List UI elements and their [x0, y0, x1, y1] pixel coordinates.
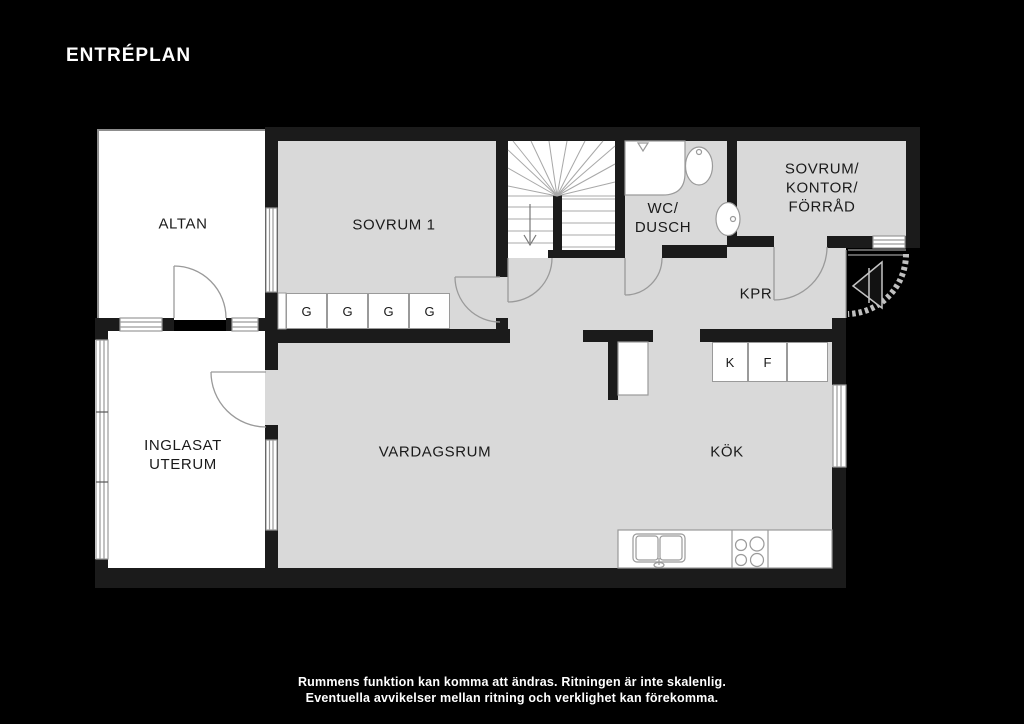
wall-segment [700, 329, 832, 342]
label-sovrum1: SOVRUM 1 [352, 216, 435, 235]
wall-segment [615, 141, 625, 258]
wall-segment [265, 329, 510, 343]
wall-segment [226, 318, 232, 331]
wall-segment [95, 318, 120, 331]
wall-segment [737, 236, 774, 247]
wardrobe-label: G [424, 304, 434, 319]
label-line: SOVRUM/ [785, 160, 859, 179]
label-kok: KÖK [710, 443, 743, 462]
floor-plan-canvas: ENTRÉPLAN [0, 0, 1024, 724]
wall-segment [662, 245, 727, 258]
wall-segment [905, 236, 920, 248]
wall-segment [906, 127, 920, 248]
label-line: INGLASAT [144, 436, 222, 455]
label-wc-dusch: WC/ DUSCH [635, 199, 691, 237]
wall-segment [265, 141, 278, 568]
cabinet-box [787, 342, 828, 382]
wall-segment [265, 127, 920, 141]
wall-segment [496, 141, 508, 277]
footer-disclaimer-line2: Eventuella avvikelser mellan ritning och… [0, 690, 1024, 706]
wall-segment [95, 331, 108, 340]
wall-segment [832, 318, 846, 385]
wall-segment [95, 559, 108, 568]
door-opening [265, 370, 278, 425]
wardrobe-box: G [327, 293, 368, 329]
freezer-box: F [748, 342, 787, 382]
wardrobe-label: G [383, 304, 393, 319]
footer-disclaimer-line1: Rummens funktion kan komma att ändras. R… [0, 674, 1024, 690]
label-line: FÖRRÅD [785, 198, 859, 217]
label-line: DUSCH [635, 218, 691, 237]
footer-disclaimer: Rummens funktion kan komma att ändras. R… [0, 674, 1024, 706]
label-vardagsrum: VARDAGSRUM [379, 443, 491, 462]
unit-label: K [726, 355, 735, 370]
wardrobe-label: G [342, 304, 352, 319]
wall-segment [258, 318, 265, 331]
fridge-box: K [712, 342, 748, 382]
wall-segment [95, 568, 846, 588]
label-line: KONTOR/ [785, 179, 859, 198]
wall-segment [832, 467, 846, 568]
wall-segment [727, 141, 737, 247]
unit-label: F [764, 355, 772, 370]
wall-segment [827, 236, 873, 248]
stair-divider-wall [553, 195, 562, 253]
wardrobe-box: G [286, 293, 327, 329]
label-line: UTERUM [144, 455, 222, 474]
wall-segment [162, 318, 174, 331]
wall-segment [615, 245, 625, 258]
exterior-area [846, 248, 920, 568]
wall-segment [583, 330, 653, 342]
wall-segment [608, 342, 618, 400]
label-altan: ALTAN [158, 215, 207, 234]
wardrobe-box: G [368, 293, 409, 329]
label-line: WC/ [635, 199, 691, 218]
label-inglasat-uterum: INGLASAT UTERUM [144, 436, 222, 474]
label-sovrum-kontor-forrad: SOVRUM/ KONTOR/ FÖRRÅD [785, 160, 859, 217]
wardrobe-label: G [301, 304, 311, 319]
plan-title: ENTRÉPLAN [66, 45, 191, 67]
wardrobe-box: G [409, 293, 450, 329]
label-kpr: KPR [740, 285, 773, 304]
